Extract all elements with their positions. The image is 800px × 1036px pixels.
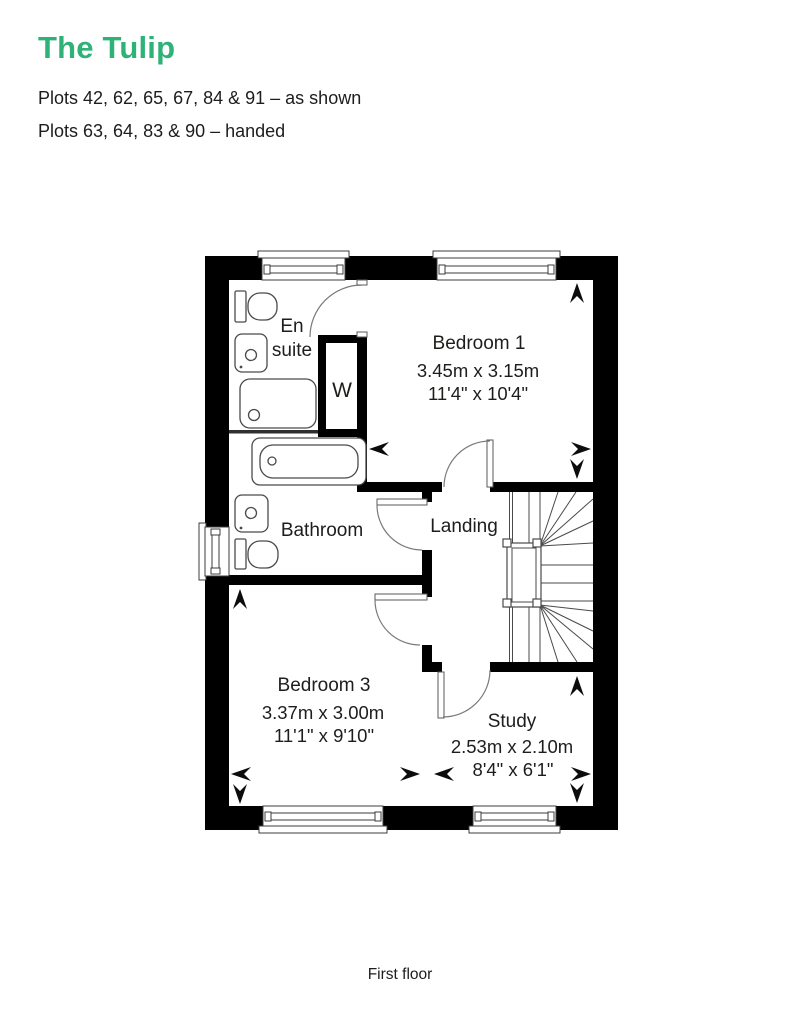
door-leaf: [487, 440, 493, 487]
bedroom1-bottom-wall-left: [367, 482, 442, 492]
bedroom3-landing-wall-bottom: [422, 645, 432, 672]
wardrobe-left-wall: [318, 335, 326, 437]
ensuite-label-line2: suite: [272, 340, 312, 361]
stair-newel-post: [503, 599, 511, 607]
door-leaf: [377, 499, 427, 505]
toilet-bowl-icon: [248, 293, 277, 320]
window-block: [548, 265, 554, 274]
window-ensuite-top: [258, 251, 349, 280]
window-glazing: [439, 266, 554, 273]
floorplan-page: The Tulip Plots 42, 62, 65, 67, 84 & 91 …: [0, 0, 800, 1036]
basin-tap-icon: [240, 527, 243, 530]
study-metric-dimensions: 2.53m x 2.10m: [451, 736, 573, 757]
bathtub-tap-icon: [268, 457, 276, 465]
bedroom1-imperial-dimensions: 11'4" x 10'4": [428, 383, 528, 404]
shower-drain-icon: [249, 410, 260, 421]
ensuite-bathroom-partition: [229, 430, 318, 434]
floor-caption: First floor: [0, 966, 800, 984]
window-block: [337, 265, 343, 274]
door-jamb: [357, 332, 367, 337]
window-block: [548, 812, 554, 821]
study-label: Study: [488, 711, 537, 732]
bedroom1-label: Bedroom 1: [433, 333, 526, 354]
ensuite-label-line1: En: [280, 316, 303, 337]
toilet-cistern-icon: [235, 291, 246, 322]
window-sill: [469, 826, 560, 833]
bedroom1-metric-dimensions: 3.45m x 3.15m: [417, 360, 539, 381]
wardrobe-label: W: [332, 379, 352, 402]
study-top-wall: [490, 662, 593, 672]
study-imperial-dimensions: 8'4" x 6'1": [473, 759, 554, 780]
window-glazing: [475, 813, 554, 820]
window-sill: [258, 251, 349, 258]
bathroom-bedroom3-wall: [229, 575, 432, 585]
basin-drain-icon: [246, 508, 257, 519]
window-bedroom1-top: [433, 251, 560, 280]
window-block: [211, 529, 220, 535]
basin-drain-icon: [246, 350, 257, 361]
toilet-bowl-icon: [248, 541, 278, 568]
bedroom3-metric-dimensions: 3.37m x 3.00m: [262, 702, 384, 723]
window-bedroom3-bottom: [259, 806, 387, 833]
door-jamb: [357, 280, 367, 285]
toilet-cistern-icon: [235, 539, 246, 569]
door-leaf: [438, 672, 444, 718]
floor-plan-drawing: En suite W Bedroom 1 3.45m x 3.15m 11'4"…: [0, 0, 800, 1036]
bathroom-landing-wall-bottom: [422, 550, 432, 575]
shower-tray-icon: [240, 379, 316, 428]
window-glazing: [265, 813, 381, 820]
bedroom3-imperial-dimensions: 11'1" x 9'10": [274, 725, 374, 746]
bedroom1-bottom-wall-right: [490, 482, 593, 492]
window-block: [375, 812, 381, 821]
stair-newel-post: [503, 539, 511, 547]
bedroom3-label: Bedroom 3: [278, 675, 371, 696]
door-leaf: [375, 594, 427, 600]
window-block: [265, 812, 271, 821]
window-block: [264, 265, 270, 274]
window-block: [211, 568, 220, 574]
window-block: [475, 812, 481, 821]
window-sill: [433, 251, 560, 258]
window-sill: [259, 826, 387, 833]
stair-newel-post: [533, 599, 541, 607]
basin-tap-icon: [240, 366, 243, 369]
window-study-bottom: [469, 806, 560, 833]
window-block: [439, 265, 445, 274]
window-glazing: [264, 266, 343, 273]
window-glazing: [212, 529, 219, 574]
bathroom-label: Bathroom: [281, 520, 363, 541]
study-door-stub-wall: [432, 662, 442, 672]
window-bathroom-left: [199, 523, 229, 580]
stair-newel-post: [533, 539, 541, 547]
landing-label: Landing: [430, 516, 498, 537]
